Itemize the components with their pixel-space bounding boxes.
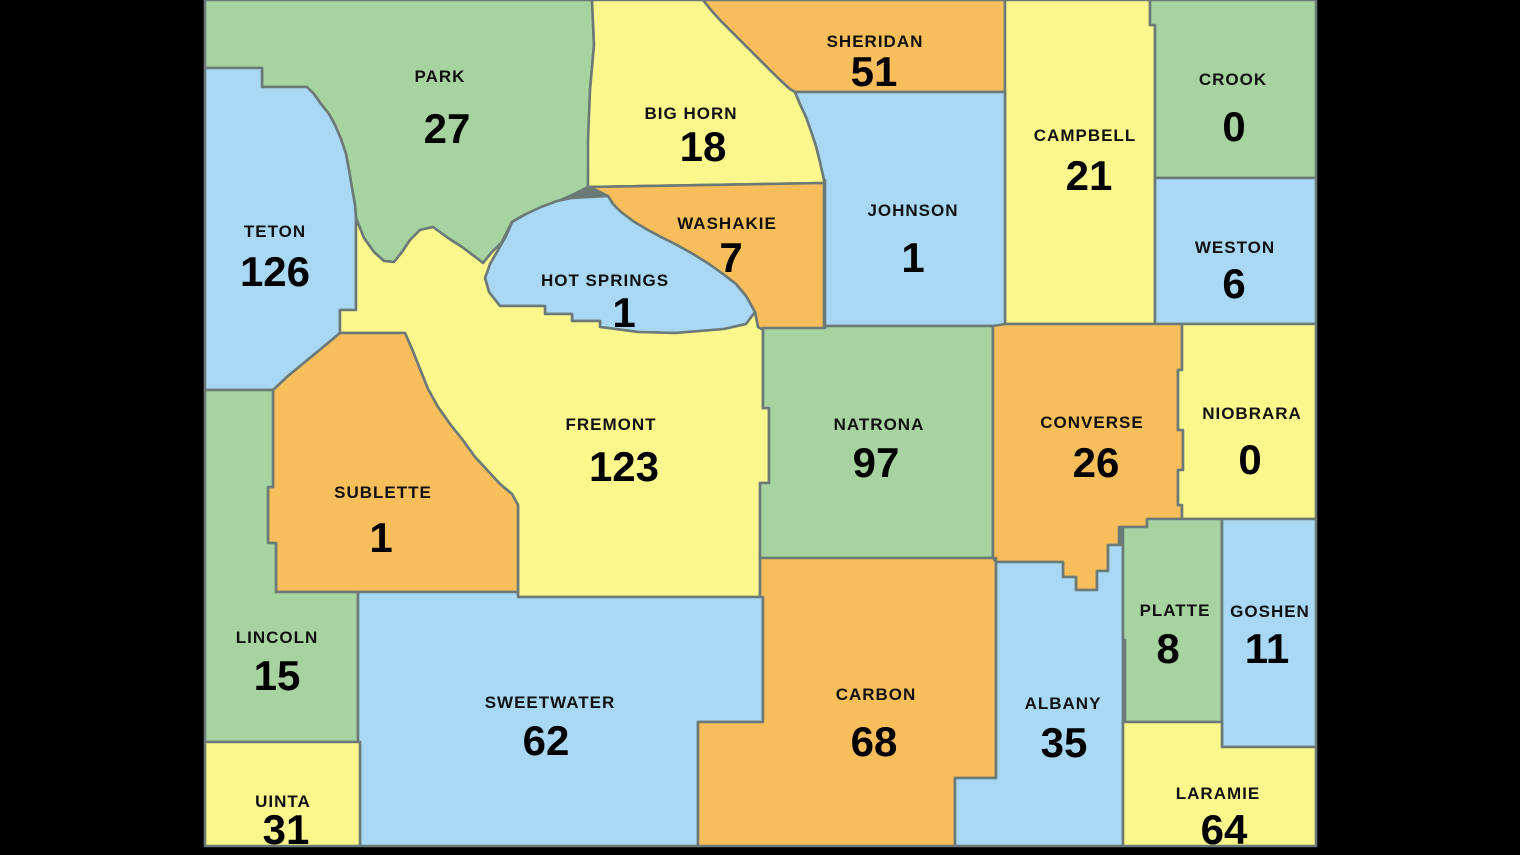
county-lincoln-value: 15 — [254, 652, 301, 699]
county-sublette-label: SUBLETTE — [334, 483, 432, 502]
county-park-label: PARK — [415, 67, 466, 86]
county-big-horn-value: 18 — [680, 123, 727, 170]
county-sweetwater-label: SWEETWATER — [485, 693, 616, 712]
county-big-horn-label: BIG HORN — [645, 104, 738, 123]
county-fremont-label: FREMONT — [565, 415, 656, 434]
county-weston-value: 6 — [1222, 260, 1245, 307]
county-sheridan-value: 51 — [851, 48, 898, 95]
county-converse-value: 26 — [1073, 439, 1120, 486]
county-laramie-value: 64 — [1201, 806, 1248, 853]
county-park-value: 27 — [424, 105, 471, 152]
county-converse-label: CONVERSE — [1040, 413, 1143, 432]
county-weston-label: WESTON — [1195, 238, 1275, 257]
county-washakie-label: WASHAKIE — [677, 214, 777, 233]
county-crook-shape — [1150, 0, 1316, 178]
county-natrona-value: 97 — [853, 439, 900, 486]
county-albany-label: ALBANY — [1025, 694, 1102, 713]
county-crook-label: CROOK — [1199, 70, 1267, 89]
county-teton-value: 126 — [240, 248, 310, 295]
county-teton-label: TETON — [244, 222, 306, 241]
county-campbell-value: 21 — [1066, 152, 1113, 199]
county-campbell: CAMPBELL21 — [1005, 0, 1155, 324]
county-carbon-label: CARBON — [836, 685, 917, 704]
county-crook: CROOK0 — [1150, 0, 1316, 178]
county-carbon-value: 68 — [851, 718, 898, 765]
county-niobrara: NIOBRARA0 — [1178, 324, 1316, 519]
county-niobrara-label: NIOBRARA — [1202, 404, 1302, 423]
county-uinta: UINTA31 — [205, 742, 360, 853]
county-albany-value: 35 — [1041, 719, 1088, 766]
county-platte: PLATTE8 — [1123, 519, 1222, 722]
county-fremont-value: 123 — [589, 443, 659, 490]
county-crook-value: 0 — [1222, 103, 1245, 150]
county-johnson: JOHNSON1 — [795, 92, 1005, 326]
county-platte-shape — [1123, 519, 1222, 722]
county-platte-label: PLATTE — [1140, 601, 1211, 620]
county-hot-springs-label: HOT SPRINGS — [541, 271, 669, 290]
county-campbell-label: CAMPBELL — [1034, 126, 1136, 145]
county-uinta-value: 31 — [263, 806, 310, 853]
county-niobrara-value: 0 — [1238, 436, 1261, 483]
screenshot-stage: PARK27BIG HORN18SHERIDAN51CAMPBELL21CROO… — [0, 0, 1520, 855]
county-laramie-label: LARAMIE — [1176, 784, 1260, 803]
county-natrona: NATRONA97 — [760, 326, 993, 558]
county-johnson-label: JOHNSON — [867, 201, 958, 220]
county-lincoln-label: LINCOLN — [236, 628, 319, 647]
county-johnson-value: 1 — [901, 234, 924, 281]
county-weston: WESTON6 — [1155, 178, 1316, 324]
county-goshen-value: 11 — [1245, 625, 1289, 672]
county-sublette-value: 1 — [369, 514, 392, 561]
county-goshen-label: GOSHEN — [1230, 602, 1310, 621]
county-sweetwater-value: 62 — [523, 717, 570, 764]
wyoming-county-map: PARK27BIG HORN18SHERIDAN51CAMPBELL21CROO… — [0, 0, 1520, 855]
county-platte-value: 8 — [1156, 625, 1179, 672]
county-natrona-label: NATRONA — [834, 415, 925, 434]
county-goshen: GOSHEN11 — [1222, 519, 1316, 747]
